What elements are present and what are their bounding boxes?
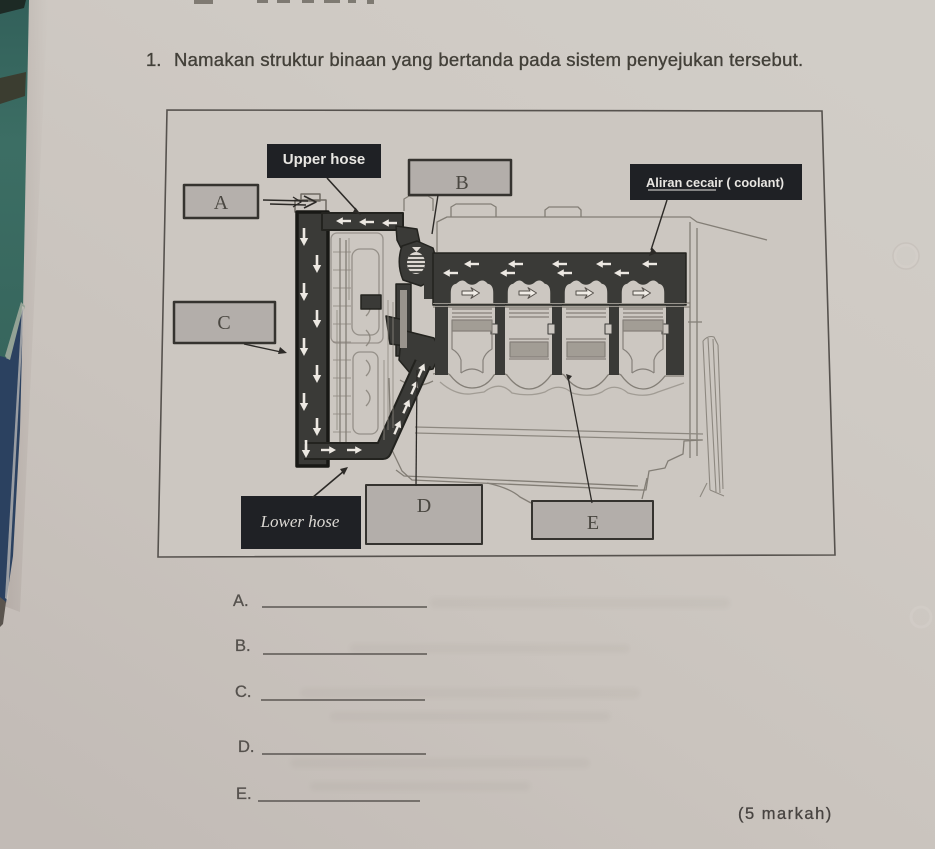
svg-text:B.: B. xyxy=(235,637,251,655)
svg-text:Lower hose: Lower hose xyxy=(260,512,340,531)
svg-text:(5 markah): (5 markah) xyxy=(738,805,833,823)
svg-text:Aliran cecair ( coolant): Aliran cecair ( coolant) xyxy=(646,175,784,190)
svg-text:C.: C. xyxy=(235,683,252,701)
svg-text:A.: A. xyxy=(233,592,249,610)
svg-text:1.: 1. xyxy=(146,49,161,70)
svg-text:E.: E. xyxy=(236,785,252,803)
svg-text:Upper hose: Upper hose xyxy=(283,151,366,168)
svg-text:D.: D. xyxy=(238,738,255,756)
svg-text:C: C xyxy=(217,312,230,334)
svg-text:D: D xyxy=(417,495,431,517)
svg-text:B: B xyxy=(455,172,468,194)
svg-text:Namakan struktur binaan yang b: Namakan struktur binaan yang bertanda pa… xyxy=(174,49,803,70)
svg-text:A: A xyxy=(214,192,229,214)
svg-text:E: E xyxy=(587,512,599,534)
